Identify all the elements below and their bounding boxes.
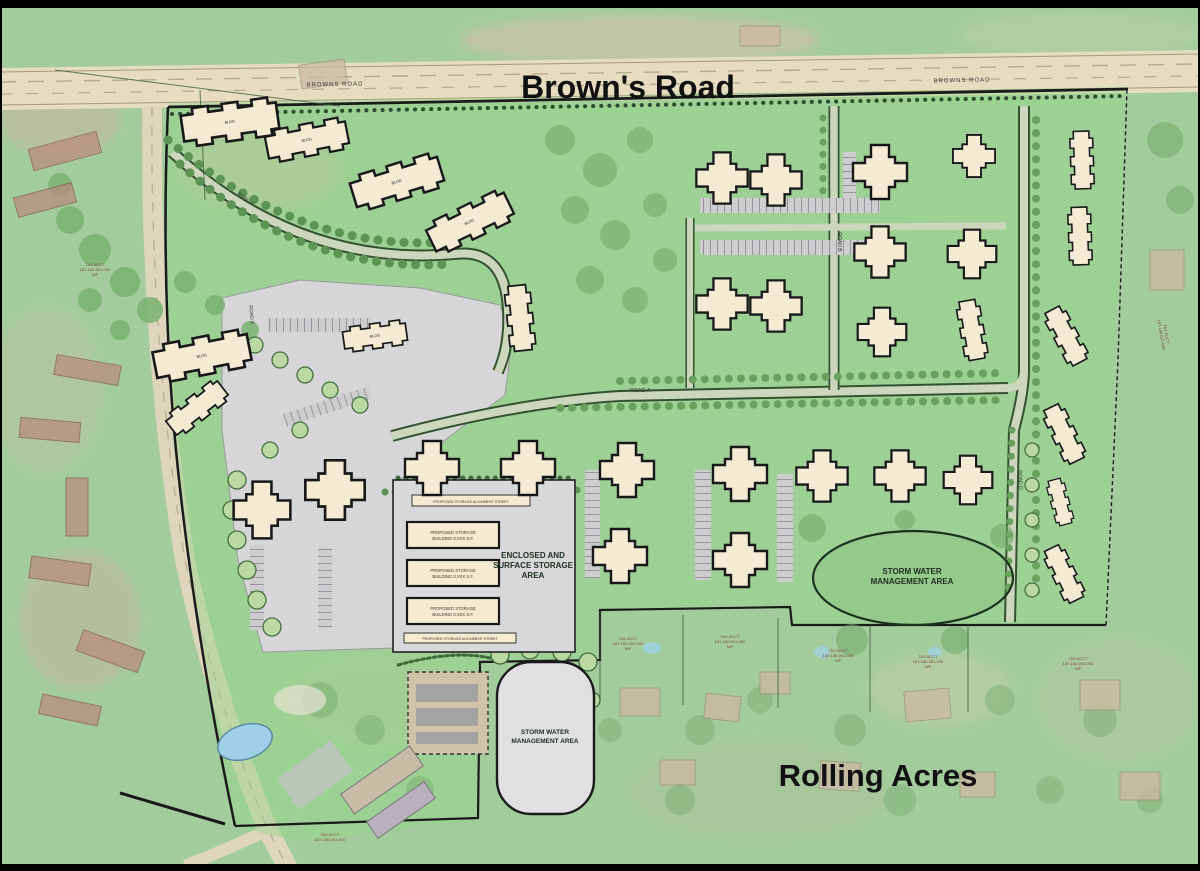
storage-area-label: ENCLOSED AND bbox=[501, 551, 565, 560]
storage-building bbox=[407, 522, 499, 548]
svg-text:MANAGEMENT AREA: MANAGEMENT AREA bbox=[871, 577, 954, 586]
storm-water-east-label: STORM WATER bbox=[882, 567, 941, 576]
svg-text:BUILDING 8,XXX S.F.: BUILDING 8,XXX S.F. bbox=[432, 536, 473, 541]
storage-building-label: PROPOSED STORAGE bbox=[430, 530, 476, 535]
storm-water-south-label: STORM WATER bbox=[521, 729, 569, 736]
browns-road-small-label-right: BROWNS ROAD bbox=[933, 78, 990, 85]
svg-text:N/F: N/F bbox=[1075, 666, 1082, 671]
svg-text:N/F: N/F bbox=[92, 272, 99, 277]
svg-text:BUILDING 8,XXX S.F.: BUILDING 8,XXX S.F. bbox=[432, 574, 473, 579]
svg-text:N/F: N/F bbox=[925, 664, 932, 669]
svg-text:MANAGEMENT AREA: MANAGEMENT AREA bbox=[511, 738, 579, 745]
svg-text:BUILDING 8,XXX S.F.: BUILDING 8,XXX S.F. bbox=[432, 612, 473, 617]
browns-road-small-label-left: BROWNS ROAD bbox=[306, 82, 363, 89]
storage-building bbox=[407, 560, 499, 586]
rolling-acres-label: Rolling Acres bbox=[779, 758, 978, 793]
svg-text:AREA: AREA bbox=[522, 571, 545, 580]
road-a-label: ROAD A bbox=[630, 388, 651, 395]
storage-building bbox=[407, 598, 499, 624]
svg-text:N/F: N/F bbox=[625, 646, 632, 651]
svg-text:SURFACE STORAGE: SURFACE STORAGE bbox=[493, 561, 574, 570]
storage-building-label: PROPOSED STORAGE bbox=[430, 606, 476, 611]
svg-text:N/F: N/F bbox=[727, 644, 734, 649]
road-b-label: ROAD B bbox=[836, 232, 842, 252]
storage-strip-label: PROPOSED STORAGE ALIGNMENT STREET bbox=[422, 637, 499, 641]
site-plan-map: BLDG BLDG BLDG BLDG BLDG BLDG Brown's Ro… bbox=[0, 0, 1200, 871]
storage-strip-label: PROPOSED STORAGE ALIGNMENT STREET bbox=[433, 500, 510, 504]
storage-building-label: PROPOSED STORAGE bbox=[430, 568, 476, 573]
svg-text:187-180-001-000: 187-180-001-000 bbox=[315, 837, 346, 842]
site-plan-canvas: BLDG BLDG BLDG BLDG BLDG BLDG Brown's Ro… bbox=[0, 0, 1200, 871]
road-d-label: ROAD D bbox=[1017, 470, 1024, 490]
svg-text:N/F: N/F bbox=[835, 658, 842, 663]
browns-road-label: Brown's Road bbox=[521, 69, 735, 105]
